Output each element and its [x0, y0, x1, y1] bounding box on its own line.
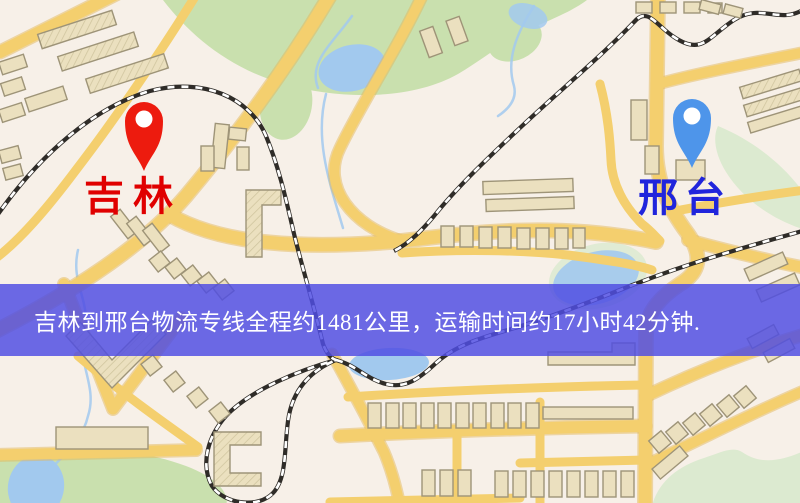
map-canvas[interactable]: [0, 0, 800, 503]
origin-label: 吉林: [84, 177, 182, 217]
destination-label: 邢台: [638, 178, 732, 218]
route-info-banner: 吉林到邢台物流专线全程约1481公里，运输时间约17小时42分钟.: [0, 284, 800, 356]
route-info-text: 吉林到邢台物流专线全程约1481公里，运输时间约17小时42分钟.: [34, 303, 700, 337]
map-screenshot: 吉林 邢台 吉林到邢台物流专线全程约1481公里，运输时间约17小时42分钟.: [0, 0, 800, 503]
pin-hole: [684, 108, 701, 125]
pin-hole: [136, 111, 153, 128]
